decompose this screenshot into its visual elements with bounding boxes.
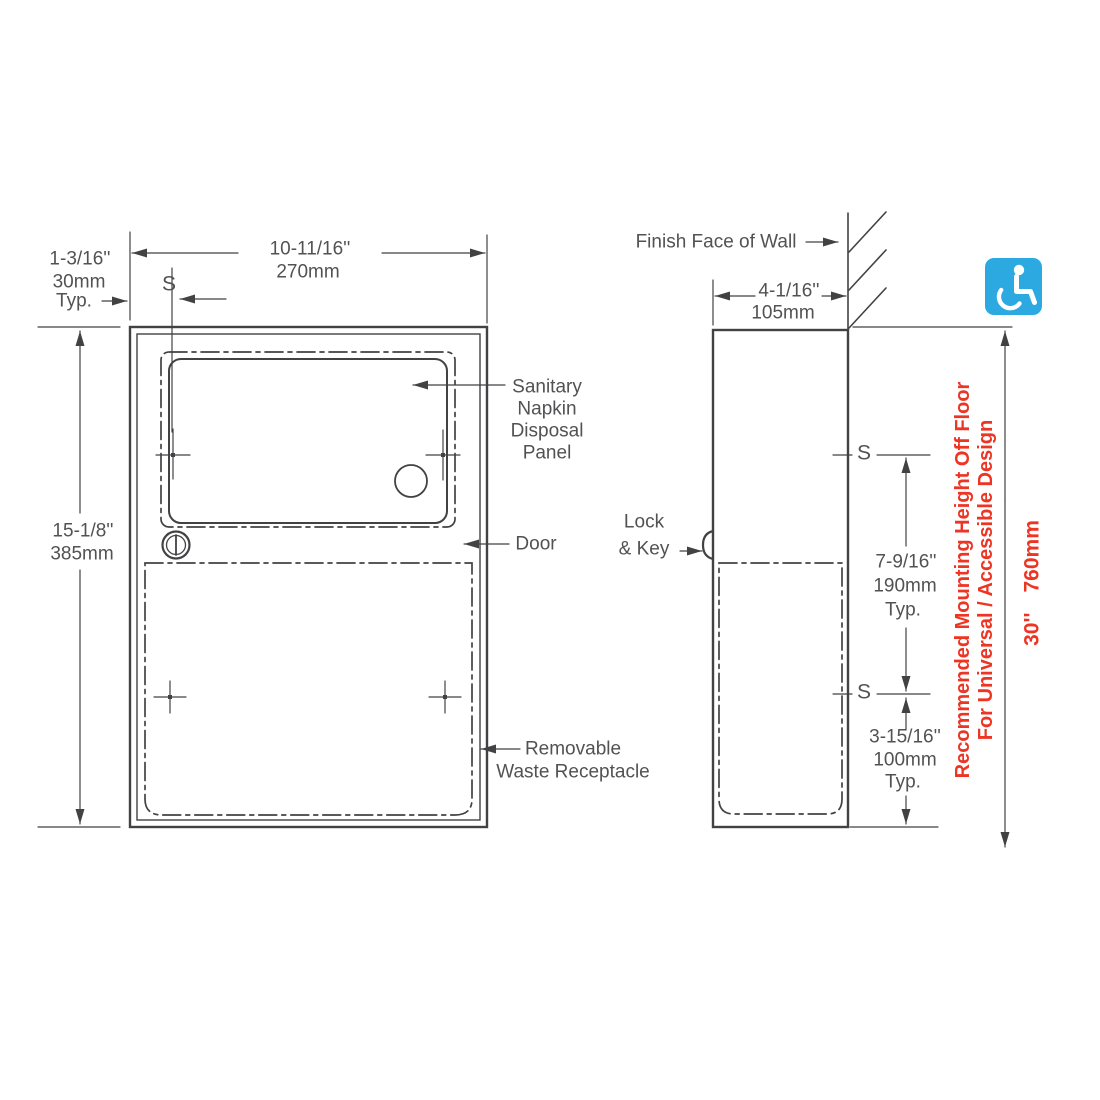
panel-callout-line1: Sanitary: [512, 378, 582, 397]
front-width-dim-inches: 10-11/16'': [270, 240, 351, 259]
side-waste-receptacle-dashdot: [719, 563, 842, 814]
side-lock-bump: [703, 531, 713, 559]
front-panel-screw-marks: [156, 429, 460, 480]
wheelchair-accessible-icon: [985, 258, 1042, 315]
front-edge-dim-typ: Typ.: [56, 292, 92, 311]
front-disposal-panel: [169, 359, 447, 523]
side-bottom-offset-inches: 3-15/16'': [869, 728, 941, 747]
side-screw-spacing-inches: 7-9/16'': [875, 553, 936, 572]
mounting-note-line1: Recommended Mounting Height Off Floor: [952, 382, 975, 779]
side-depth-dim-mm: 105mm: [751, 304, 814, 323]
panel-callout-line3: Disposal: [511, 422, 584, 441]
lock-callout-line2: & Key: [619, 540, 670, 559]
receptacle-callout-line2: Waste Receptacle: [496, 763, 649, 782]
wall-callout: Finish Face of Wall: [636, 233, 797, 252]
wall-hatching: [848, 212, 886, 330]
side-screw-marker-lower: S: [857, 682, 871, 703]
mounting-height-dim: 30''760mm: [1022, 520, 1043, 646]
front-waste-receptacle-dashdot: [145, 563, 472, 815]
side-screw-marker-upper: S: [857, 443, 871, 464]
panel-callout-line4: Panel: [523, 444, 572, 463]
door-callout: Door: [515, 535, 556, 554]
lock-callout-line1: Lock: [624, 513, 664, 532]
front-screw-marker-label: S: [162, 274, 176, 295]
side-depth-dim-inches: 4-1/16'': [758, 282, 819, 301]
front-panel-opening-dashdot: [161, 352, 455, 527]
front-height-dim-mm: 385mm: [50, 545, 113, 564]
mounting-height-note: Recommended Mounting Height Off Floor Fo…: [952, 382, 998, 779]
mounting-note-line2: For Universal / Accessible Design: [975, 382, 998, 779]
finger-hole: [395, 465, 427, 497]
front-edge-dim-mm: 30mm: [53, 273, 106, 292]
side-screw-spacing-mm: 190mm: [873, 577, 936, 596]
front-receptacle-screw-marks: [154, 681, 461, 713]
receptacle-callout-line1: Removable: [525, 740, 621, 759]
side-screw-spacing-typ: Typ.: [885, 601, 921, 620]
front-edge-dim-inches: 1-3/16'': [49, 250, 110, 269]
mounting-height-inches: 30'': [1021, 613, 1044, 646]
front-height-dim-inches: 15-1/8'': [52, 522, 113, 541]
side-view-cabinet-outline: [713, 330, 848, 827]
front-lock-cylinder: [163, 532, 190, 559]
front-leader-lines: [413, 385, 520, 749]
mounting-height-mm: 760mm: [1021, 520, 1044, 592]
front-width-dim-mm: 270mm: [276, 263, 339, 282]
front-view-cabinet-outline: [130, 327, 487, 827]
side-bottom-offset-mm: 100mm: [873, 751, 936, 770]
panel-callout-line2: Napkin: [517, 400, 576, 419]
side-bottom-offset-typ: Typ.: [885, 773, 921, 792]
spec-drawing-page: 10-11/16'' 270mm 1-3/16'' 30mm Typ. S 15…: [0, 0, 1100, 1100]
